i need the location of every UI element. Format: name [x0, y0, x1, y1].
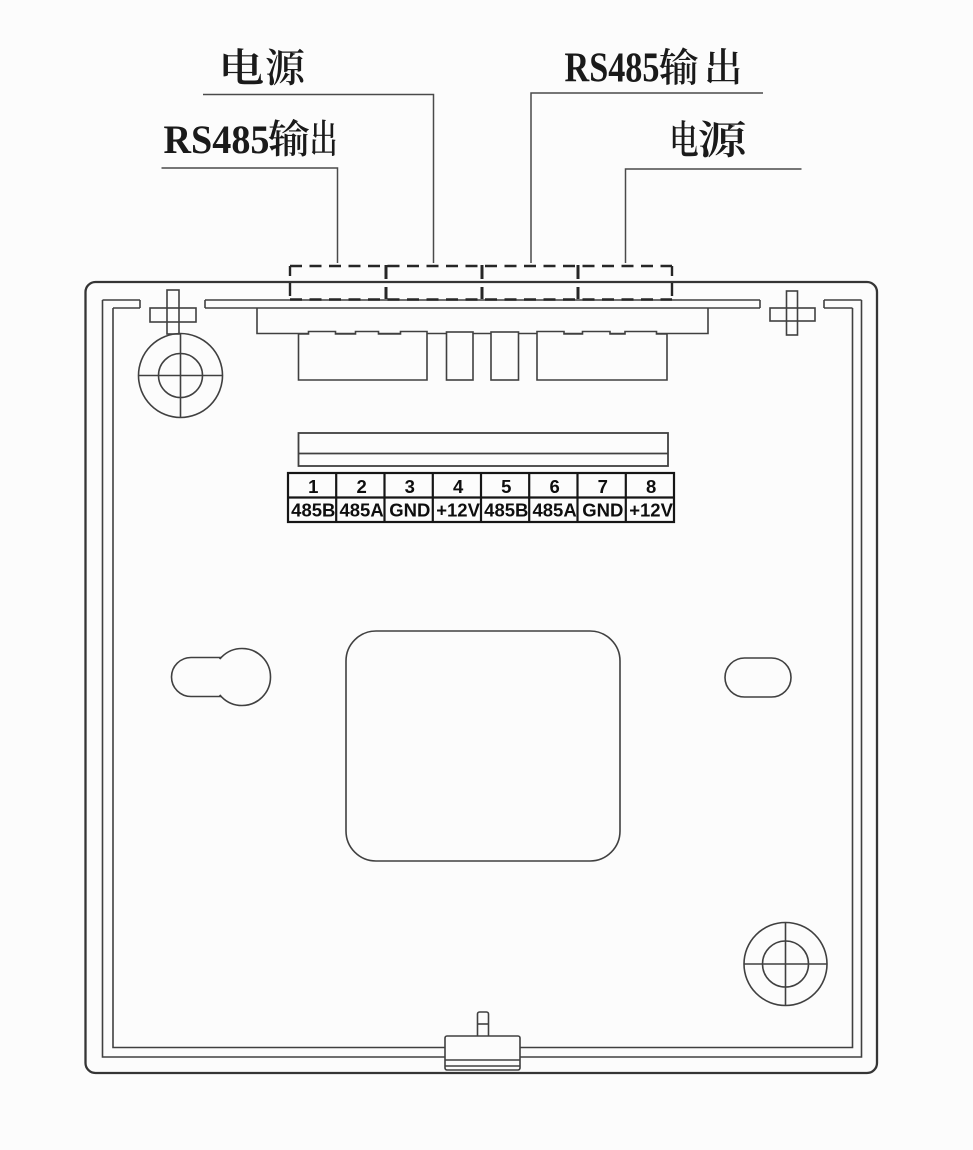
svg-text:8: 8 [646, 476, 656, 497]
svg-text:GND: GND [582, 500, 623, 521]
svg-text:485A: 485A [339, 500, 383, 521]
svg-text:3: 3 [405, 476, 415, 497]
svg-text:7: 7 [598, 476, 608, 497]
svg-text:485A: 485A [532, 500, 576, 521]
svg-text:RS485: RS485 [164, 117, 270, 162]
svg-text:+12V: +12V [629, 500, 673, 521]
svg-text:4: 4 [453, 476, 464, 497]
svg-text:6: 6 [549, 476, 559, 497]
svg-text:GND: GND [389, 500, 430, 521]
svg-text:485B: 485B [484, 500, 528, 521]
svg-text:RS485: RS485 [565, 46, 660, 92]
svg-text:5: 5 [501, 476, 511, 497]
svg-text:2: 2 [356, 476, 366, 497]
svg-text:+12V: +12V [436, 500, 480, 521]
svg-text:485B: 485B [291, 500, 335, 521]
svg-text:1: 1 [308, 476, 318, 497]
